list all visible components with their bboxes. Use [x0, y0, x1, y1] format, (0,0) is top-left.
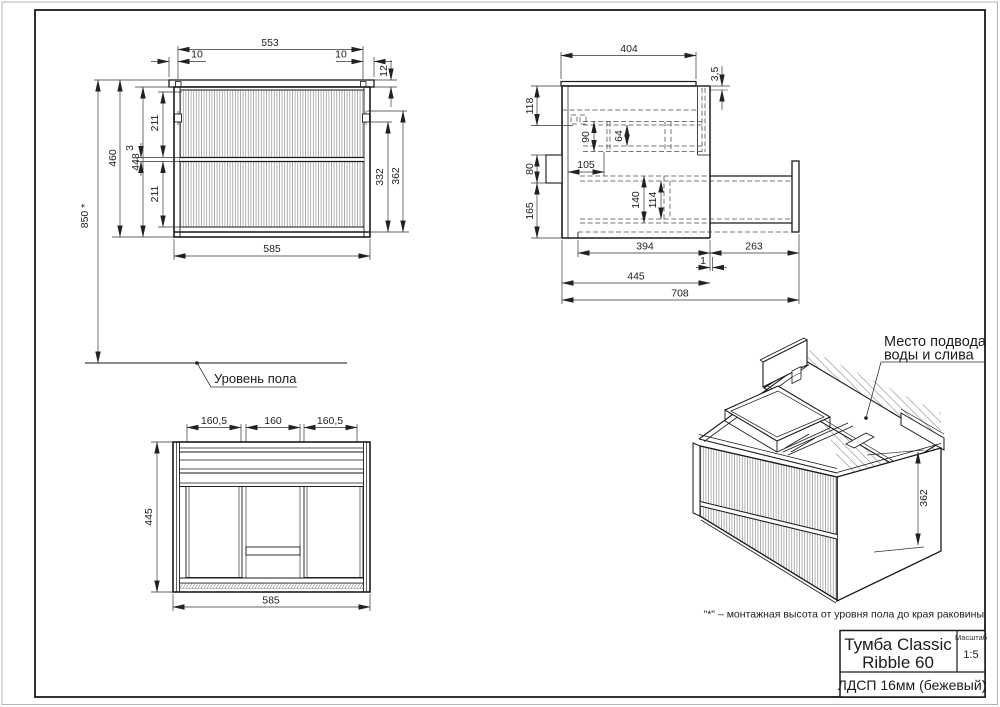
product-title-line1: Тумба Classic — [844, 635, 952, 654]
dim-side-1: 1 — [700, 255, 706, 267]
dim-top-445: 445 — [143, 508, 155, 526]
dim-side-118: 118 — [524, 97, 536, 114]
technical-drawing: 553 10 10 12 460 448 850 * 211 3 211 332… — [0, 0, 1000, 707]
dim-side-263: 263 — [745, 241, 763, 253]
dim-side-90: 90 — [580, 131, 592, 143]
drawing-sheet: 553 10 10 12 460 448 850 * 211 3 211 332… — [0, 0, 1000, 707]
dim-top-585: 585 — [262, 595, 280, 607]
dim-side-140: 140 — [630, 191, 642, 209]
dim-front-362: 362 — [390, 167, 402, 185]
dim-side-114: 114 — [647, 191, 659, 208]
dim-front-585: 585 — [263, 243, 281, 255]
dim-side-445: 445 — [627, 271, 645, 283]
dim-front-12: 12 — [378, 65, 390, 77]
dim-side-165: 165 — [524, 202, 536, 220]
dim-side-64: 64 — [613, 130, 625, 142]
drawer-front-panel — [792, 161, 799, 232]
wall-bracket — [546, 155, 562, 183]
dim-top-160-5-left: 160,5 — [201, 415, 227, 427]
material-label: ЛДСП 16мм (бежевый) — [838, 677, 987, 693]
dim-top-160: 160 — [264, 415, 282, 427]
dim-front-448: 448 — [130, 153, 142, 171]
top-view: 160,5 160 160,5 445 585 — [143, 415, 370, 611]
dim-side-404: 404 — [620, 43, 638, 55]
dim-front-10-right: 10 — [335, 49, 347, 61]
dim-front-3: 3 — [124, 145, 136, 151]
dim-front-211-top: 211 — [149, 114, 161, 131]
dim-front-460: 460 — [107, 149, 119, 167]
scale-value: 1:5 — [963, 649, 978, 661]
dim-side-80: 80 — [524, 163, 536, 175]
title-block: Тумба Classic Ribble 60 Масштаб 1:5 ЛДСП… — [838, 631, 987, 698]
dim-side-3-5: 3,5 — [709, 67, 721, 82]
dim-front-850: 850 * — [79, 204, 91, 229]
product-title-line2: Ribble 60 — [862, 653, 934, 672]
dim-front-10-left: 10 — [191, 49, 203, 61]
dim-side-708: 708 — [671, 288, 689, 300]
dim-front-553: 553 — [261, 37, 279, 49]
dim-front-211-bottom: 211 — [149, 185, 161, 202]
footnote: "*" – монтажная высота от уровня пола до… — [703, 609, 984, 621]
dim-side-394: 394 — [636, 241, 654, 253]
outer-border — [2, 2, 998, 705]
water-note-line2: воды и слива — [884, 348, 975, 364]
dim-iso-362: 362 — [918, 489, 930, 507]
dim-side-105: 105 — [577, 159, 595, 171]
dim-front-332: 332 — [374, 168, 386, 186]
floor-level-label: Уровень пола — [214, 371, 297, 386]
scale-label: Масштаб — [955, 633, 987, 642]
dim-top-160-5-right: 160,5 — [317, 415, 343, 427]
